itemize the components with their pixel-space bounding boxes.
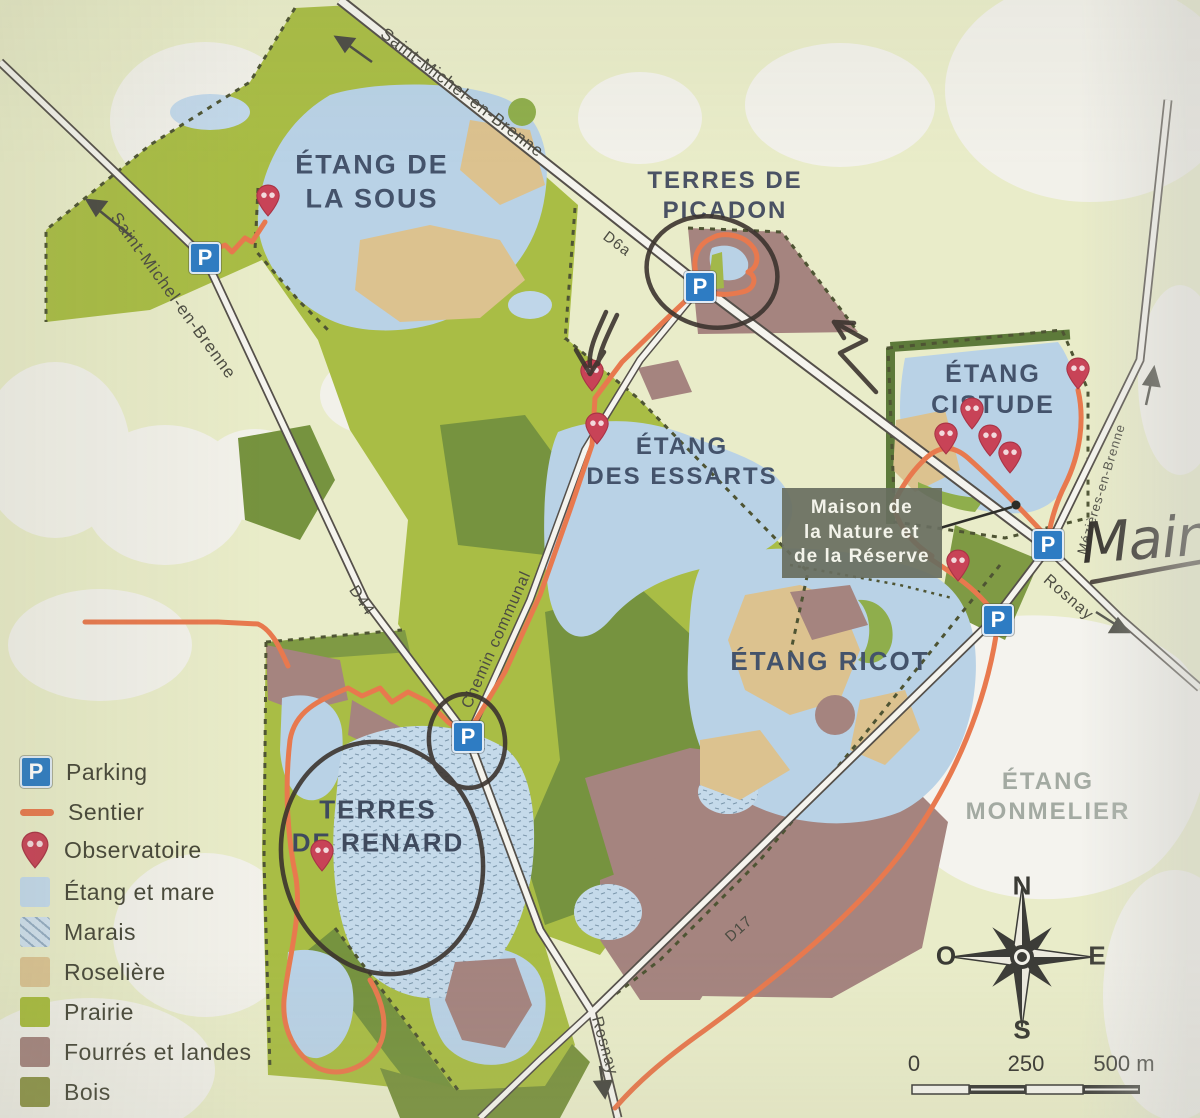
fourres-swatch-icon xyxy=(20,1037,50,1067)
legend-item-prairie: Prairie xyxy=(20,993,134,1031)
legend-label: Étang et mare xyxy=(64,879,215,906)
legend-item-roseliere: Roselière xyxy=(20,953,166,991)
observatory-pin-icon xyxy=(997,441,1023,479)
legend-item-bois: Bois xyxy=(20,1073,111,1111)
compass-north-label: N xyxy=(1013,871,1032,902)
compass-east-label: E xyxy=(1088,941,1105,972)
parking-icon: P xyxy=(1032,529,1064,561)
scale-bar xyxy=(912,1085,1140,1094)
scale-middle-label: 250 xyxy=(1008,1051,1045,1077)
parking-icon: P xyxy=(452,721,484,753)
parking-icon: P xyxy=(20,756,52,788)
observatory-pin-icon xyxy=(933,422,959,460)
observatory-pin-icon xyxy=(584,412,610,450)
etang-swatch-icon xyxy=(20,877,50,907)
legend-label: Parking xyxy=(66,759,147,786)
legend-item-marais: Marais xyxy=(20,913,136,951)
legend-item-parking: P Parking xyxy=(20,753,147,791)
prairie-swatch-icon xyxy=(20,997,50,1027)
legend-label: Fourrés et landes xyxy=(64,1039,251,1066)
legend-item-fourres-et-landes: Fourrés et landes xyxy=(20,1033,251,1071)
legend-label: Bois xyxy=(64,1079,111,1106)
observatory-pin-icon xyxy=(945,549,971,587)
map-artwork xyxy=(0,0,1200,1118)
parking-icon: P xyxy=(982,604,1014,636)
legend-label: Prairie xyxy=(64,999,134,1026)
compass-south-label: S xyxy=(1013,1015,1030,1046)
legend-label: Roselière xyxy=(64,959,166,986)
roseliere-swatch-icon xyxy=(20,957,50,987)
legend-label: Marais xyxy=(64,919,136,946)
legend-item-observatoire: Observatoire xyxy=(20,831,202,869)
legend-label: Observatoire xyxy=(64,837,202,864)
bois-swatch-icon xyxy=(20,1077,50,1107)
reserve-map: ÉTANG DE LA SOUS TERRES DE PICADON ÉTANG… xyxy=(0,0,1200,1118)
sentier-line-icon xyxy=(20,809,54,816)
parking-icon: P xyxy=(189,242,221,274)
marais-swatch-icon xyxy=(20,917,50,947)
legend-item-etang-et-mare: Étang et mare xyxy=(20,873,215,911)
compass-west-label: O xyxy=(936,941,956,972)
observatory-pin-icon xyxy=(1065,357,1091,395)
label-maison-de-la-nature: Maison de la Nature et de la Réserve xyxy=(782,488,942,578)
observatory-pin-icon xyxy=(20,831,50,869)
parking-icon: P xyxy=(684,271,716,303)
observatory-pin-icon xyxy=(579,359,605,397)
legend-item-sentier: Sentier xyxy=(20,793,144,831)
observatory-pin-icon xyxy=(255,184,281,222)
observatory-pin-icon xyxy=(309,839,335,877)
scale-end-label: 500 m xyxy=(1093,1051,1154,1077)
legend-label: Sentier xyxy=(68,799,144,826)
scale-start-label: 0 xyxy=(908,1051,920,1077)
